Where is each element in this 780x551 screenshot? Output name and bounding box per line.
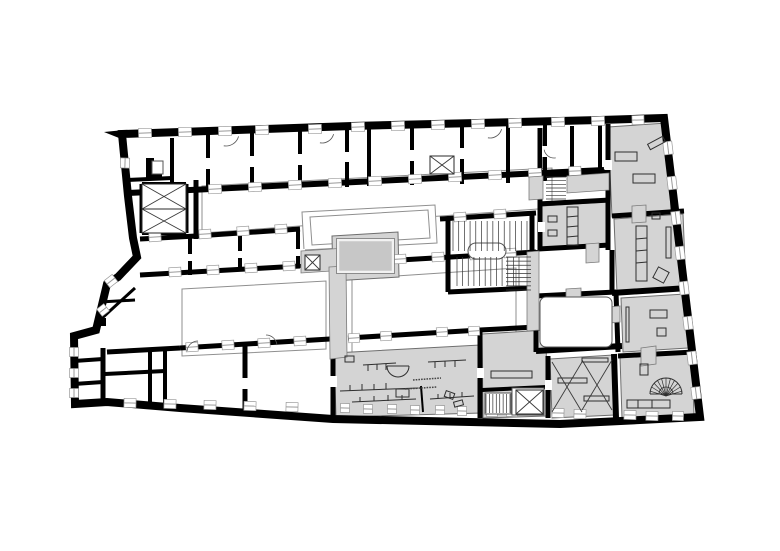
window	[340, 403, 349, 412]
window	[368, 176, 381, 186]
window	[632, 115, 644, 124]
door-gap	[249, 156, 256, 167]
window	[671, 211, 682, 225]
window	[286, 402, 298, 411]
door-gap	[242, 378, 249, 389]
window	[363, 404, 372, 413]
gray-cell-top	[529, 176, 543, 200]
window	[494, 209, 507, 219]
window	[431, 120, 444, 129]
window	[218, 126, 231, 135]
window	[275, 224, 288, 234]
window	[391, 121, 404, 130]
window	[70, 389, 79, 398]
window	[551, 117, 564, 126]
window	[436, 327, 447, 337]
window	[591, 116, 604, 125]
floor-plan-canvas	[0, 0, 780, 551]
door-gap	[542, 146, 549, 157]
window	[432, 252, 444, 262]
floor-plan-page	[0, 0, 780, 551]
window	[255, 125, 268, 134]
door-gap	[330, 376, 337, 387]
door-gap	[344, 152, 351, 162]
window	[186, 342, 198, 352]
window	[408, 174, 421, 184]
link-b-down	[586, 243, 599, 263]
window	[348, 333, 359, 343]
window	[435, 405, 444, 414]
window	[457, 406, 466, 415]
window	[471, 119, 484, 128]
window	[328, 178, 341, 188]
link-f-spiral	[641, 346, 656, 366]
gray-room-f	[621, 294, 688, 352]
corridor-v	[329, 266, 347, 359]
closet	[485, 393, 511, 414]
window	[138, 128, 151, 137]
door-gap	[409, 150, 416, 161]
window	[687, 351, 698, 365]
round-corner-room	[540, 297, 612, 347]
window	[245, 263, 257, 273]
door-gap	[237, 251, 247, 258]
window	[351, 122, 364, 131]
window	[178, 127, 191, 136]
door-gap	[477, 368, 484, 378]
window	[508, 118, 521, 127]
window	[124, 398, 136, 407]
door-gap	[205, 158, 212, 169]
interior-wall	[614, 354, 616, 418]
door-gap	[459, 148, 466, 159]
window	[380, 331, 391, 341]
window	[683, 316, 694, 330]
window	[691, 386, 701, 399]
door-gap	[545, 380, 552, 390]
link-a-corridor	[567, 173, 609, 193]
window	[222, 340, 234, 350]
window	[164, 399, 176, 408]
window	[70, 369, 79, 378]
door-gap	[538, 222, 545, 232]
corridor-right-v	[527, 251, 539, 331]
window	[667, 176, 678, 190]
window	[574, 409, 586, 418]
window	[454, 212, 467, 222]
window	[248, 182, 261, 192]
window	[70, 348, 79, 357]
window	[672, 411, 683, 420]
window	[663, 141, 674, 155]
window	[204, 400, 216, 409]
window	[199, 229, 212, 239]
window	[244, 401, 256, 410]
window	[237, 226, 250, 236]
window	[149, 232, 162, 242]
door-gap	[605, 160, 612, 170]
door-gap	[297, 154, 304, 165]
link-a-c	[632, 205, 646, 223]
interior-wall	[140, 236, 196, 239]
window	[308, 124, 321, 133]
window	[169, 267, 181, 277]
window	[258, 338, 270, 348]
window	[410, 405, 419, 414]
window	[207, 265, 219, 275]
window	[679, 281, 690, 295]
window	[294, 336, 306, 346]
tl-closet	[152, 161, 163, 174]
window	[488, 170, 501, 180]
window	[288, 180, 301, 190]
window	[569, 166, 581, 176]
window	[394, 254, 406, 264]
window	[675, 246, 686, 260]
window	[387, 404, 396, 413]
window	[283, 261, 295, 271]
window	[624, 410, 636, 419]
window	[208, 184, 221, 194]
window	[646, 411, 658, 420]
wall-detail	[96, 318, 106, 326]
window	[468, 326, 479, 336]
door-gap	[187, 254, 197, 261]
dark-room	[338, 240, 393, 272]
window	[120, 158, 129, 168]
